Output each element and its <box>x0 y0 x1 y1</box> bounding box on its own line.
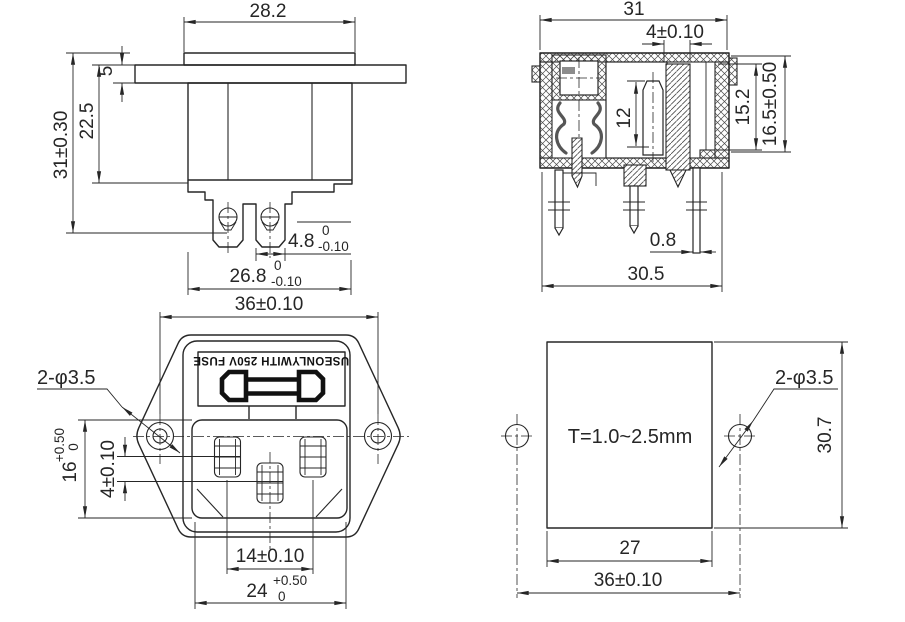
svg-text:0.8: 0.8 <box>650 230 676 251</box>
svg-text:16.5±0.50: 16.5±0.50 <box>760 62 781 146</box>
svg-text:36±0.10: 36±0.10 <box>594 570 663 591</box>
housing-left-wall <box>540 62 552 158</box>
dim-opening-height: 16 +0.50 0 <box>52 420 192 518</box>
housing-right-ear <box>729 58 737 85</box>
dim-overall-depth: 31±0.30 <box>51 53 227 233</box>
svg-text:15.2: 15.2 <box>733 89 754 126</box>
svg-text:27: 27 <box>619 538 640 559</box>
dim-cutout-hole-pitch: 36±0.10 <box>517 570 740 593</box>
front-view: USEONLYWITH 250V FUSE <box>37 294 409 609</box>
svg-text:-0.10: -0.10 <box>318 239 349 254</box>
fuse-symbol <box>222 372 323 400</box>
spring-contact <box>557 103 566 153</box>
svg-text:4.8: 4.8 <box>288 231 314 252</box>
solder-pin-middle <box>623 165 646 233</box>
cutout-hole-right <box>724 414 756 598</box>
svg-text:31: 31 <box>623 0 644 20</box>
flat-pin-section <box>666 64 690 170</box>
mounting-hole-right <box>365 414 392 464</box>
dim-flange-thickness: 5 <box>92 46 135 102</box>
svg-text:4±0.10: 4±0.10 <box>98 440 119 498</box>
svg-text:0: 0 <box>66 443 81 451</box>
housing-right-wall <box>715 62 729 158</box>
panel-thickness-note: T=1.0~2.5mm <box>568 426 693 448</box>
cutout-hole-left <box>501 414 533 598</box>
svg-text:2-φ3.5: 2-φ3.5 <box>775 367 834 389</box>
technical-drawing: 28.2 5 22.5 31±0.30 <box>0 0 905 622</box>
dim-pin-row-offset: 4±0.10 <box>98 437 283 501</box>
svg-text:-0.10: -0.10 <box>271 274 302 289</box>
svg-text:31±0.30: 31±0.30 <box>51 111 72 180</box>
fuse-pin-section <box>572 138 582 187</box>
svg-text:+0.50: +0.50 <box>52 428 67 462</box>
side-view: 28.2 5 22.5 31±0.30 <box>51 1 406 295</box>
svg-text:30.5: 30.5 <box>628 264 665 285</box>
dim-pin-thickness: 0.8 <box>650 230 716 252</box>
svg-text:24: 24 <box>246 581 268 602</box>
flat-pin-tip <box>670 170 686 187</box>
housing-body <box>188 83 352 180</box>
dim-cutout-width: 27 <box>547 531 712 567</box>
solder-pin-left <box>548 170 596 235</box>
solder-pin-right <box>686 168 707 253</box>
drawing-canvas: 28.2 5 22.5 31±0.30 <box>0 0 905 622</box>
svg-text:0: 0 <box>278 589 286 604</box>
pin-neutral <box>300 437 326 477</box>
svg-text:4±0.10: 4±0.10 <box>646 22 704 43</box>
mounting-flange <box>135 65 406 83</box>
section-view: 12 4±0.10 31 <box>532 0 791 292</box>
recess-chamfer <box>316 489 342 517</box>
svg-text:2-φ3.5: 2-φ3.5 <box>37 367 96 389</box>
fuse-contact-bar <box>562 67 575 74</box>
svg-text:16: 16 <box>60 461 81 482</box>
housing-left-ear <box>532 66 540 82</box>
svg-text:0: 0 <box>322 223 330 238</box>
svg-text:26.8: 26.8 <box>230 266 267 287</box>
recess-chamfer <box>197 489 223 517</box>
svg-text:14±0.10: 14±0.10 <box>236 546 305 567</box>
front-rim <box>184 53 355 65</box>
spring-contact <box>592 103 601 153</box>
panel-cutout-view: T=1.0~2.5mm 2-φ3.5 30.7 27 <box>501 342 848 598</box>
svg-text:28.2: 28.2 <box>250 1 287 22</box>
svg-text:30.7: 30.7 <box>815 417 836 454</box>
svg-text:0: 0 <box>274 258 282 273</box>
dim-rim-width: 28.2 <box>184 1 355 52</box>
dim-body-width: 26.8 0 -0.10 <box>188 252 351 295</box>
right-ledge <box>700 150 715 158</box>
svg-text:22.5: 22.5 <box>77 103 98 140</box>
fuse-marking-text: USEONLYWITH 250V FUSE <box>193 354 349 366</box>
svg-text:12: 12 <box>614 107 635 128</box>
svg-text:36±0.10: 36±0.10 <box>235 294 304 315</box>
pin-live <box>215 437 241 477</box>
svg-text:+0.50: +0.50 <box>273 573 307 588</box>
